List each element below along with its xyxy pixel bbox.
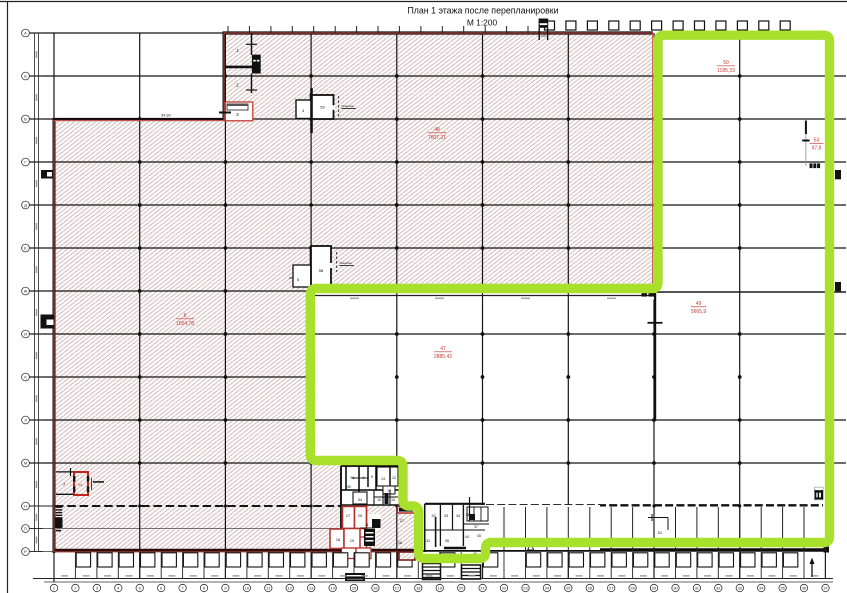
- svg-text:Пищеблок: Пищеблок: [340, 261, 353, 265]
- svg-text:Ж: Ж: [24, 289, 28, 294]
- svg-text:15: 15: [352, 586, 356, 591]
- svg-text:27: 27: [400, 519, 404, 523]
- svg-text:6: 6: [160, 586, 162, 591]
- svg-text:М: М: [24, 461, 27, 466]
- svg-text:53: 53: [814, 138, 820, 144]
- svg-text:55: 55: [347, 485, 351, 489]
- svg-text:18: 18: [336, 538, 340, 542]
- svg-text:31: 31: [426, 539, 430, 543]
- svg-text:И: И: [24, 332, 27, 337]
- svg-text:12: 12: [392, 476, 396, 480]
- svg-text:32: 32: [716, 586, 720, 591]
- svg-text:11: 11: [365, 523, 369, 527]
- svg-text:Д: Д: [24, 203, 27, 208]
- svg-text:16: 16: [373, 586, 377, 591]
- svg-text:Е: Е: [24, 246, 27, 251]
- svg-text:18: 18: [416, 586, 420, 591]
- svg-text:49: 49: [696, 301, 702, 307]
- svg-text:21: 21: [480, 586, 484, 591]
- svg-text:27: 27: [609, 586, 613, 591]
- svg-text:19: 19: [438, 586, 442, 591]
- svg-text:51: 51: [658, 531, 662, 535]
- svg-text:П: П: [24, 526, 27, 531]
- svg-text:17: 17: [346, 514, 350, 518]
- svg-text:9: 9: [371, 475, 373, 479]
- svg-text:44: 44: [465, 535, 469, 539]
- svg-text:34: 34: [456, 514, 460, 518]
- svg-text:35: 35: [445, 539, 449, 543]
- svg-text:5: 5: [139, 586, 141, 591]
- svg-text:28: 28: [630, 586, 634, 591]
- svg-text:16: 16: [377, 498, 381, 502]
- svg-text:38: 38: [466, 513, 470, 517]
- svg-text:33: 33: [738, 586, 742, 591]
- svg-text:11: 11: [266, 586, 270, 591]
- svg-text:33: 33: [444, 514, 448, 518]
- svg-text:1654,78: 1654,78: [176, 321, 194, 327]
- svg-text:58: 58: [319, 268, 324, 273]
- svg-text:7607,21: 7607,21: [428, 135, 446, 141]
- svg-text:37: 37: [823, 586, 827, 591]
- svg-text:М 1:200: М 1:200: [467, 18, 498, 28]
- svg-text:Пищеблок: Пищеблок: [342, 104, 355, 108]
- svg-text:15: 15: [391, 498, 395, 502]
- svg-text:9: 9: [224, 586, 226, 591]
- svg-text:2: 2: [74, 586, 76, 591]
- svg-text:23: 23: [523, 586, 527, 591]
- svg-text:36: 36: [802, 586, 806, 591]
- svg-text:29: 29: [652, 586, 656, 591]
- svg-text:61: 61: [78, 482, 82, 487]
- svg-text:48: 48: [434, 127, 440, 133]
- svg-text:8: 8: [203, 586, 205, 591]
- svg-text:А: А: [24, 31, 27, 36]
- svg-text:19: 19: [350, 539, 354, 543]
- svg-text:14: 14: [387, 489, 391, 493]
- svg-text:План 1 этажа после перепланиро: План 1 этажа после перепланировки: [407, 6, 558, 16]
- svg-text:12: 12: [288, 586, 292, 591]
- svg-text:47: 47: [440, 346, 446, 352]
- svg-text:Л: Л: [24, 418, 27, 423]
- svg-text:1: 1: [53, 586, 55, 591]
- svg-text:13: 13: [381, 477, 385, 481]
- svg-text:26: 26: [588, 586, 592, 591]
- svg-text:22: 22: [502, 586, 506, 591]
- svg-text:6: 6: [184, 313, 187, 319]
- svg-text:45: 45: [477, 534, 481, 538]
- svg-text:25: 25: [566, 586, 570, 591]
- svg-text:37: 37: [474, 525, 478, 529]
- svg-text:Б: Б: [24, 74, 27, 79]
- svg-text:1185,33: 1185,33: [717, 68, 735, 74]
- svg-text:В: В: [24, 117, 27, 122]
- svg-text:31: 31: [695, 586, 699, 591]
- svg-text:59: 59: [320, 105, 325, 110]
- svg-text:54: 54: [358, 498, 362, 502]
- svg-text:8: 8: [363, 476, 365, 480]
- svg-text:56: 56: [351, 476, 355, 480]
- svg-text:5665,9: 5665,9: [691, 309, 707, 315]
- svg-text:Р: Р: [24, 549, 27, 554]
- svg-text:17: 17: [395, 586, 399, 591]
- svg-text:3: 3: [96, 586, 98, 591]
- svg-text:50: 50: [723, 60, 729, 66]
- svg-text:13: 13: [309, 586, 313, 591]
- svg-text:Н: Н: [24, 504, 27, 509]
- svg-text:20: 20: [358, 514, 362, 518]
- svg-text:54.80: 54.80: [161, 114, 171, 118]
- svg-text:97,8: 97,8: [812, 146, 822, 152]
- svg-text:32: 32: [431, 514, 435, 518]
- svg-text:28: 28: [398, 541, 402, 545]
- svg-text:7: 7: [182, 586, 184, 591]
- svg-text:2885,42: 2885,42: [434, 354, 452, 360]
- svg-text:35: 35: [780, 586, 784, 591]
